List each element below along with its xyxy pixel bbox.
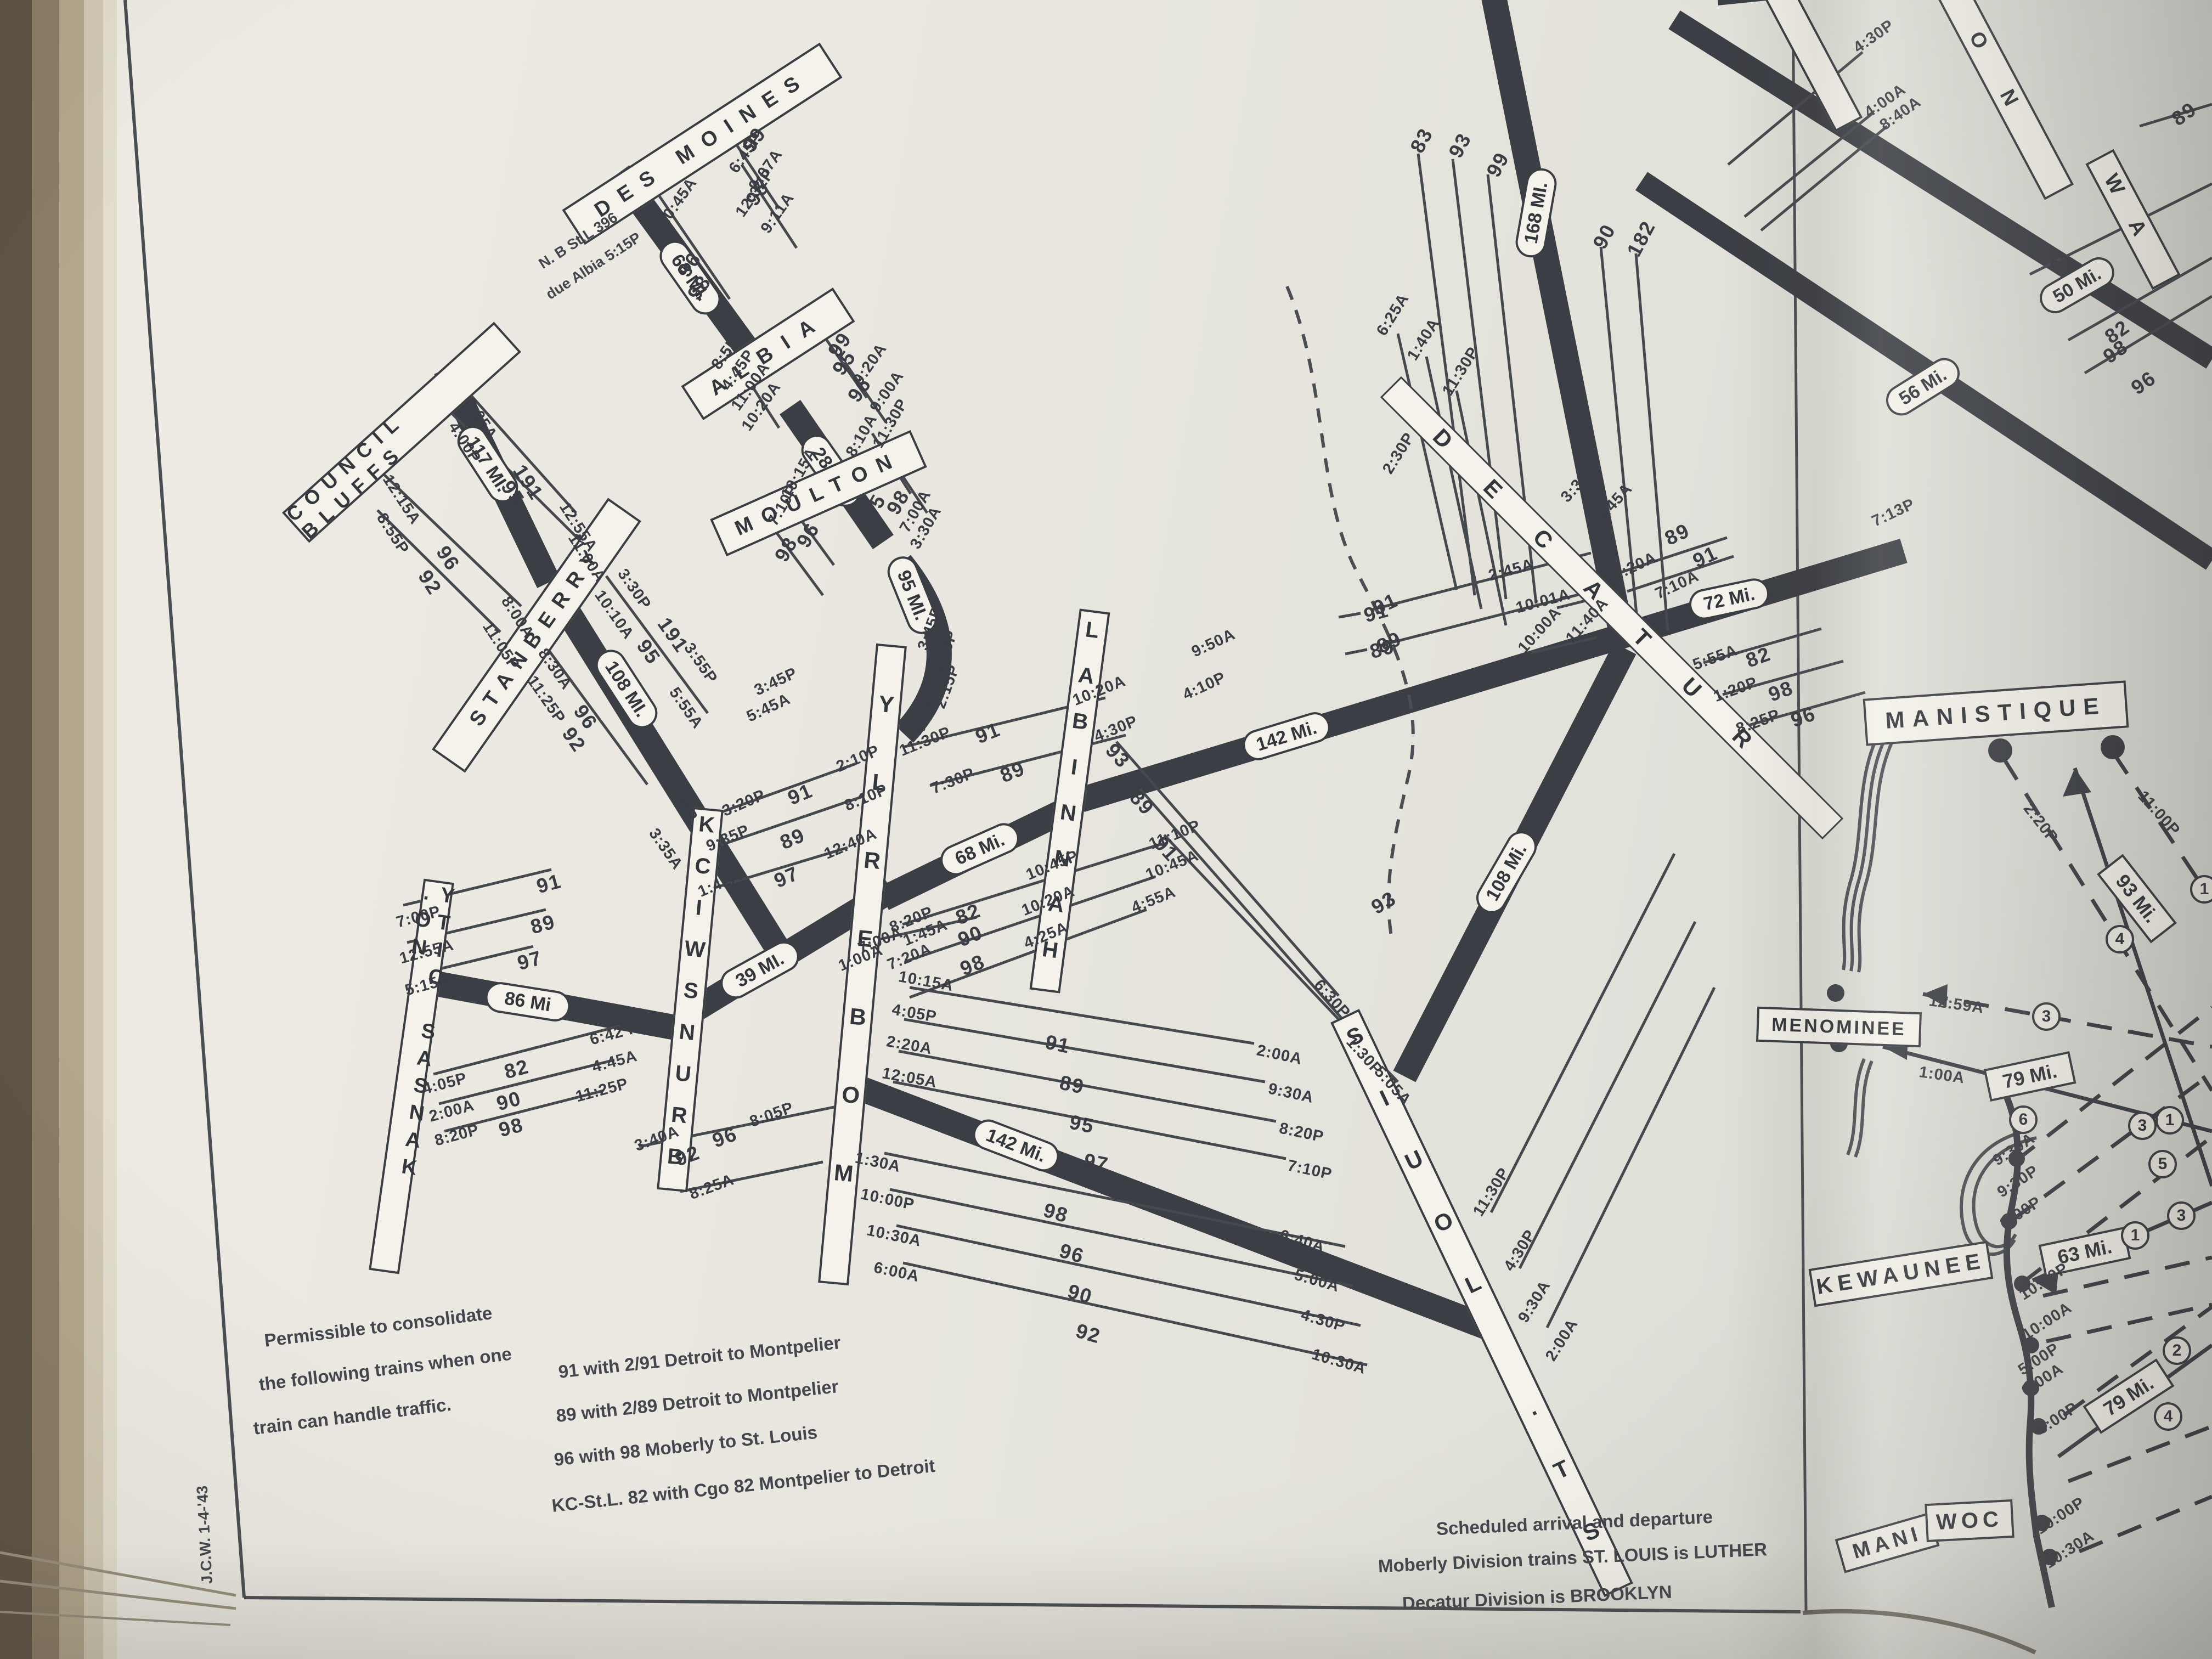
station-bar-manitowoc-right: WOC xyxy=(1925,1499,2014,1542)
photographed-railroad-diagram-page: 117 MI. 108 MI. 86 Mi 39 MI. 68 MI. 28 M… xyxy=(0,0,2212,1659)
circled-number: 4 xyxy=(2154,1402,2182,1431)
circled-number: 3 xyxy=(2128,1111,2157,1140)
circled-number: 2 xyxy=(2163,1336,2191,1365)
train-number-label: 91 xyxy=(1043,1030,1073,1058)
circled-number: 1 xyxy=(2121,1221,2149,1250)
station-label: WOC xyxy=(1936,1506,2004,1534)
circled-number: 4 xyxy=(2106,925,2134,953)
circled-number: 5 xyxy=(2148,1150,2177,1178)
train-number-label: 95 xyxy=(1068,1110,1097,1138)
train-number-label: 89 xyxy=(1058,1071,1087,1098)
circled-number: 6 xyxy=(2009,1105,2038,1134)
station-label: MANISTIQUE xyxy=(1884,692,2107,734)
book-edge xyxy=(0,0,236,1659)
train-number-label: 97 xyxy=(1082,1149,1111,1176)
circled-number: 1 xyxy=(2155,1106,2184,1135)
circled-number: 3 xyxy=(2032,1002,2061,1031)
station-label: MENOMINEE xyxy=(1771,1014,1907,1040)
circled-number: 3 xyxy=(2167,1201,2196,1230)
station-bar-menominee: MENOMINEE xyxy=(1756,1007,1922,1047)
